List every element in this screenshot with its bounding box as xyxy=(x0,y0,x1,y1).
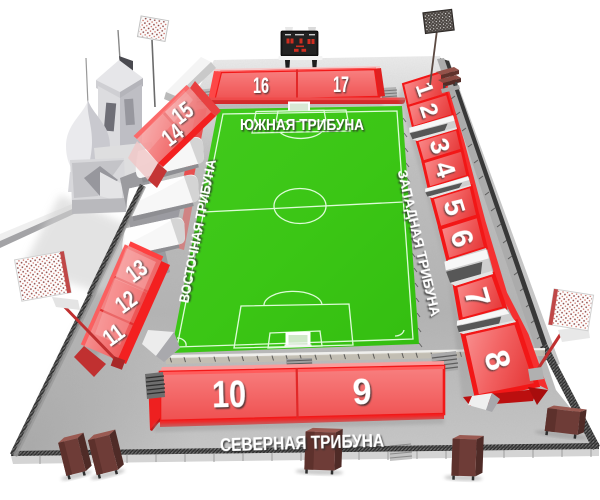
svg-text:9: 9 xyxy=(352,371,372,412)
svg-text:17: 17 xyxy=(333,72,349,97)
svg-text:ЮЖНАЯ ТРИБУНА: ЮЖНАЯ ТРИБУНА xyxy=(240,117,364,134)
svg-text:16: 16 xyxy=(253,73,269,98)
svg-text:10: 10 xyxy=(211,374,246,417)
